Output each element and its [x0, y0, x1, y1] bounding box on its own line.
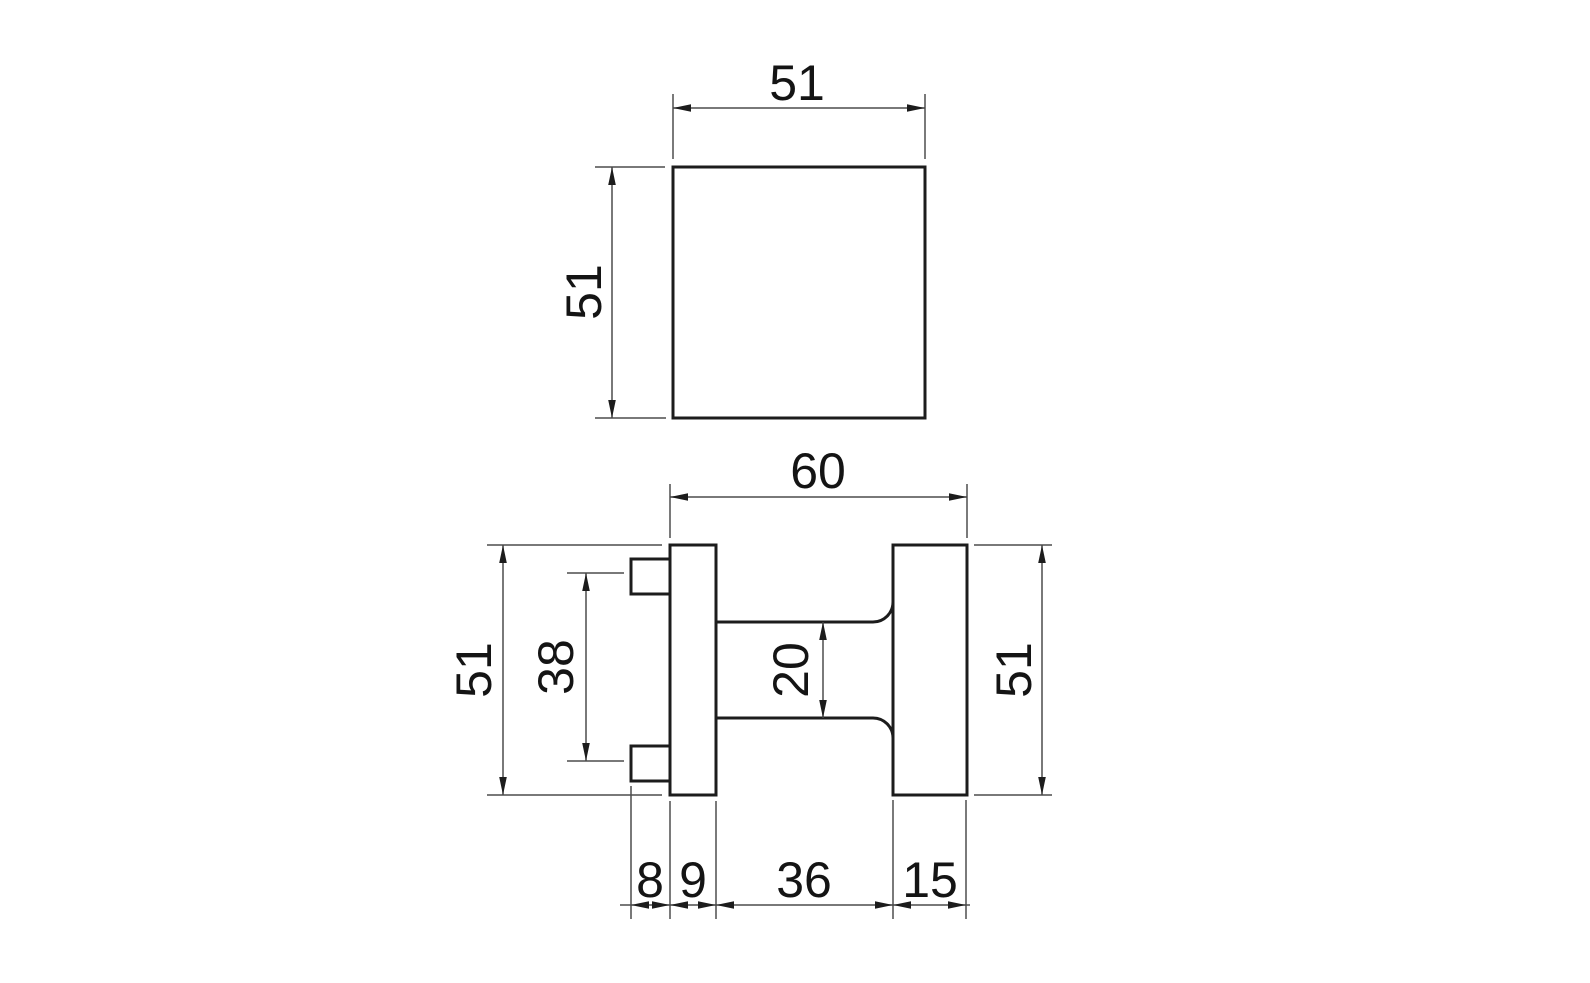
dim-top-view-width: 51	[673, 55, 925, 159]
bottom-peg-outline	[631, 746, 670, 781]
dim-backplate-height-label: 51	[446, 642, 502, 698]
dim-neck-height-label: 20	[763, 642, 819, 698]
top-view-outline	[673, 167, 925, 418]
arrowhead-up	[1038, 545, 1046, 563]
backplate-outline	[670, 545, 716, 795]
dim-knob-height: 51	[974, 545, 1052, 795]
arrowhead-up	[608, 167, 616, 185]
dim-overall-depth-label: 60	[790, 443, 846, 499]
dim-fixing-centres: 38	[528, 573, 624, 761]
top-peg-outline	[631, 559, 670, 594]
top-view: 51 51	[556, 55, 925, 418]
arrowhead-down	[819, 700, 827, 718]
dim-fixing-centres-label: 38	[528, 639, 584, 695]
dim-neck-height: 20	[763, 622, 827, 718]
dim-peg-depth-label: 8	[636, 852, 664, 908]
dim-overall-depth: 60	[670, 443, 967, 538]
dim-knob-thickness-label: 15	[902, 852, 958, 908]
arrowhead-up	[819, 622, 827, 640]
dim-neck-length-label: 36	[776, 852, 832, 908]
arrowhead-left	[716, 901, 734, 909]
arrowhead-down	[608, 400, 616, 418]
dim-top-view-height-label: 51	[556, 264, 612, 320]
dim-top-view-width-label: 51	[769, 55, 825, 111]
arrowhead-right	[907, 104, 925, 112]
dim-top-view-height: 51	[556, 167, 666, 418]
neck-bottom-line	[716, 718, 893, 738]
arrowhead-up	[499, 545, 507, 563]
arrowhead-up	[582, 573, 590, 591]
side-view: 60 51 38 20	[446, 443, 1052, 919]
arrowhead-left	[673, 104, 691, 112]
arrowhead-down	[499, 777, 507, 795]
dim-backplate-thickness-label: 9	[679, 852, 707, 908]
arrowhead-down	[582, 743, 590, 761]
neck-top-line	[716, 602, 893, 622]
arrowhead-down	[1038, 777, 1046, 795]
knob-outline	[893, 545, 967, 795]
technical-drawing: 51 51 60	[0, 0, 1590, 983]
arrowhead-right	[875, 901, 893, 909]
arrowhead-right	[949, 493, 967, 501]
dim-bottom-chain: 8 9 36 15	[620, 786, 970, 919]
arrowhead-left	[670, 493, 688, 501]
dim-knob-height-label: 51	[986, 642, 1042, 698]
